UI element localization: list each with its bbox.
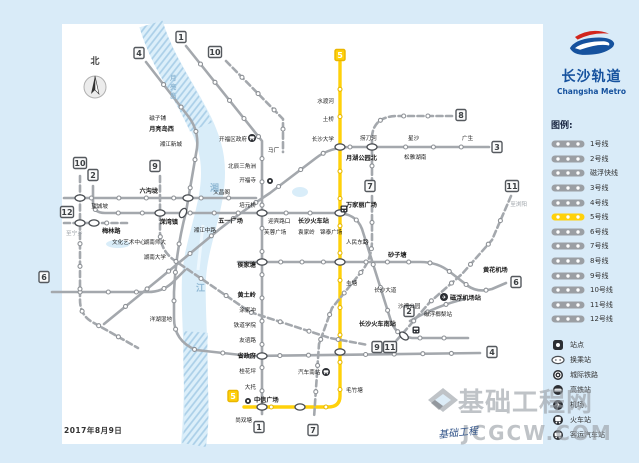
- station-label: 磁子铺: [149, 114, 166, 122]
- legend-icon-label: 机场: [570, 400, 584, 410]
- station-dot: [78, 242, 82, 246]
- legend-line-item: 10号线: [551, 283, 639, 298]
- station-dot: [177, 242, 181, 246]
- station-dot: [370, 164, 374, 168]
- station-dot: [402, 114, 406, 118]
- line-badge-11: 11: [384, 342, 397, 353]
- line-badge-5: 5: [228, 391, 238, 402]
- train-body: [413, 327, 420, 334]
- station-dot: [240, 75, 244, 79]
- station-dot: [277, 185, 281, 189]
- badge-number: 7: [310, 426, 316, 435]
- transfer-station: [257, 353, 267, 359]
- line-swatch: [551, 213, 585, 221]
- station-label: 圭塘: [346, 279, 358, 287]
- station-label: 砂子塘: [387, 251, 407, 259]
- station-label: 月湖公园北: [345, 154, 378, 162]
- legend-line-label: 7号线: [590, 241, 608, 251]
- legend-line-item: 5号线: [551, 210, 639, 225]
- station-dot: [338, 224, 342, 228]
- station-dot: [316, 363, 320, 367]
- station-label: 广生: [462, 134, 474, 142]
- legend-line-item: 1号线: [551, 137, 639, 152]
- station-label: 磁浮榔梨站: [424, 310, 452, 318]
- transfer-station: [257, 404, 267, 410]
- station-dot: [338, 306, 342, 310]
- legend-line-label: 4号线: [590, 198, 608, 208]
- station-dot: [321, 260, 325, 264]
- badge-number: 5: [337, 51, 343, 60]
- station-label: 至宁乡: [66, 229, 83, 237]
- legend-line-item: 6号线: [551, 225, 639, 240]
- station-dot: [106, 290, 110, 294]
- station-dot: [221, 351, 225, 355]
- station-dot: [300, 260, 304, 264]
- line-badge-10: 10: [74, 158, 87, 169]
- badge-number: 2: [90, 171, 96, 180]
- legend-icon-list: 站点换乘站城际铁路高铁站✈机场火车站客运汽车站: [551, 338, 639, 443]
- bus-legend-icon: [551, 428, 565, 442]
- line-swatch: [551, 257, 585, 265]
- station-label: 湖南大学: [144, 253, 167, 261]
- line-badge-4: 4: [134, 48, 144, 59]
- station-label: 黄花机场: [483, 266, 508, 274]
- station-dot: [338, 333, 342, 337]
- station-dot: [144, 196, 148, 200]
- station-dot: [426, 114, 430, 118]
- legend-line-item: 7号线: [551, 239, 639, 254]
- transfer-station: [335, 349, 345, 355]
- station-dot: [459, 145, 463, 149]
- station-label: 长沙火车南站: [359, 320, 397, 328]
- station-label: 中信广场: [254, 396, 279, 404]
- plane-glyph: ✈: [442, 294, 447, 301]
- line-swatch: [551, 286, 585, 294]
- station-dot: [278, 354, 282, 358]
- station-label: 梅林路: [102, 227, 121, 235]
- station-dot: [308, 211, 312, 215]
- station-dot: [442, 336, 446, 340]
- station-dot: [338, 360, 342, 364]
- line-swatch: [551, 184, 585, 192]
- station-label: 捞刀河: [360, 134, 377, 142]
- station-dot: [162, 83, 166, 87]
- badge-number: 4: [489, 348, 495, 357]
- station-dot: [80, 309, 84, 313]
- station-dot: [188, 252, 192, 256]
- station-dot: [162, 287, 166, 291]
- station-dot: [364, 260, 368, 264]
- station-dot: [174, 259, 178, 263]
- line-badge-7: 7: [365, 181, 375, 192]
- legend-icon-label: 城际铁路: [570, 370, 598, 380]
- station-label: 北辰三角洲: [228, 162, 256, 170]
- train-light: [345, 210, 346, 211]
- legend-line-item: 9号线: [551, 268, 639, 283]
- station-dot: [260, 319, 264, 323]
- train-light: [414, 331, 415, 332]
- line-swatch: [551, 272, 585, 280]
- station-dot: [404, 145, 408, 149]
- station-label: 涂家冲: [239, 306, 256, 314]
- transfer-station: [335, 259, 345, 265]
- station-dot: [272, 108, 276, 112]
- station-label: 望城坡: [91, 202, 108, 210]
- line-swatch: [551, 242, 585, 250]
- transfer-legend-icon: [551, 353, 565, 367]
- station-dot: [78, 287, 82, 291]
- station-dot: [338, 251, 342, 255]
- station-dot: [172, 196, 176, 200]
- legend-icon-item: 城际铁路: [551, 368, 639, 383]
- line-badge-1: 1: [254, 422, 264, 433]
- hsr-legend-icon: [551, 383, 565, 397]
- station-dot: [179, 105, 183, 109]
- station-label: 月亮岛西: [148, 125, 174, 133]
- station-legend-icon: [551, 338, 565, 352]
- line-swatch: [551, 301, 585, 309]
- legend-icon-item: ✈机场: [551, 398, 639, 413]
- station-dot: [284, 211, 288, 215]
- station-dot: [260, 250, 264, 254]
- changsha-metro-linemap-page: 北✈11223445566778991010111112磁子铺月亮岛西湘江新城开…: [0, 0, 639, 463]
- station-dot: [338, 87, 342, 91]
- station-dot: [167, 269, 171, 273]
- legend-icon-item: 站点: [551, 338, 639, 353]
- bus-body: [324, 370, 329, 373]
- station-dot: [359, 271, 363, 275]
- station-dot: [338, 169, 342, 173]
- station-label: 开福区政府: [219, 135, 247, 143]
- badge-number: 1: [256, 423, 262, 432]
- station-dot: [78, 264, 82, 268]
- station-dot: [260, 273, 264, 277]
- station-dot: [228, 98, 232, 102]
- station-dot: [371, 263, 375, 267]
- legend-line-item: 4号线: [551, 195, 639, 210]
- station-label: 黄土岭: [237, 291, 256, 299]
- badge-number: 9: [152, 162, 158, 171]
- station-dot: [260, 342, 264, 346]
- legend-line-item: 12号线: [551, 312, 639, 327]
- legend-line-label: 2号线: [590, 154, 608, 164]
- station-label: 松雅湖南: [404, 153, 427, 161]
- station-label: 汽车南站: [298, 368, 321, 376]
- station-dot: [140, 211, 144, 215]
- station-label: 湘江新城: [160, 140, 183, 148]
- train-light: [417, 331, 418, 332]
- station-dot: [444, 302, 448, 306]
- station-dot: [173, 270, 177, 274]
- station-label: 省政府: [236, 352, 256, 360]
- line-badge-10: 10: [209, 47, 222, 58]
- legend: 图例: 1号线 2号线 磁浮快线 3号线: [551, 118, 639, 443]
- station-dot: [224, 294, 228, 298]
- intercity-icon: [245, 398, 252, 405]
- station-dot: [227, 196, 231, 200]
- station-label: 江: [196, 282, 205, 294]
- station-label: 开福寺: [239, 176, 256, 184]
- station-dot: [336, 338, 340, 342]
- legend-icon-label: 换乘站: [570, 355, 591, 365]
- station-label: 长沙大道: [374, 286, 397, 294]
- line-badge-9: 9: [372, 342, 382, 353]
- badge-number: 11: [384, 343, 396, 352]
- line-badge-6: 6: [511, 277, 521, 288]
- station-dot: [278, 320, 282, 324]
- line-swatch: [551, 155, 585, 163]
- airport-legend-icon: ✈: [551, 398, 565, 412]
- brand-name-en: Changsha Metro: [544, 87, 639, 96]
- legend-line-label: 5号线: [590, 212, 608, 222]
- station-dot: [369, 247, 373, 251]
- bus-wheel: [253, 139, 254, 140]
- station-dot: [193, 347, 197, 351]
- station-dot: [449, 351, 453, 355]
- station-label: 湘江中路: [194, 226, 217, 234]
- station-label: 月亮岛: [169, 74, 177, 100]
- station-label: 铁道学院: [234, 321, 257, 329]
- station-dot: [450, 281, 454, 285]
- station-dot: [89, 196, 93, 200]
- station-dot: [328, 313, 332, 317]
- station-label: 人民东路: [346, 238, 369, 246]
- station-dot: [236, 211, 240, 215]
- station-dot: [299, 168, 303, 172]
- station-dot: [364, 353, 368, 357]
- line-badge-3: 3: [492, 142, 502, 153]
- station-label: 文化艺术中心: [112, 238, 146, 246]
- line-badge-4: 4: [487, 347, 497, 358]
- train-light: [342, 210, 343, 211]
- badge-number: 4: [136, 49, 142, 58]
- line-badge-2: 2: [88, 170, 98, 181]
- legend-icon-label: 高铁站: [570, 385, 591, 395]
- legend-icon-item: 火车站: [551, 413, 639, 428]
- station-dot: [193, 158, 197, 162]
- legend-icon-label: 火车站: [570, 415, 591, 425]
- badge-number: 10: [209, 48, 221, 57]
- line-badge-5: 5: [335, 50, 345, 61]
- station-dot: [97, 324, 101, 328]
- station-label: 毛竹塘: [346, 386, 363, 394]
- station-dot: [484, 288, 488, 292]
- legend-line-label: 8号线: [590, 256, 608, 266]
- station-dot: [199, 62, 203, 66]
- station-dot: [212, 211, 216, 215]
- bus-wheel: [327, 373, 328, 374]
- transfer-station: [155, 210, 165, 216]
- line-swatch: [551, 140, 585, 148]
- transfer-station: [75, 220, 85, 226]
- station-dot: [486, 242, 490, 246]
- station-dot: [174, 327, 178, 331]
- station-dot: [124, 304, 128, 308]
- station-dot: [314, 390, 318, 394]
- brand-logo: 长沙轨道 Changsha Metro: [544, 26, 639, 96]
- station-label: 桂花坪: [239, 367, 256, 375]
- station-dot: [338, 388, 342, 392]
- badge-number: 12: [61, 208, 72, 217]
- station-label: 水渡河: [317, 97, 334, 105]
- station-label: 六沟垅: [139, 187, 158, 195]
- station-label: 袁家岭: [298, 228, 315, 236]
- legend-line-item: 8号线: [551, 254, 639, 269]
- badge-number: 5: [230, 392, 236, 401]
- station-dot: [407, 260, 411, 264]
- legend-line-label: 磁浮快线: [590, 168, 618, 178]
- station-label: 湖南师大: [144, 238, 167, 246]
- station-dot: [199, 277, 203, 281]
- station-dot: [431, 145, 435, 149]
- station-label: 土桥: [323, 115, 335, 123]
- station-dot: [338, 278, 342, 282]
- transfer-station: [367, 144, 377, 150]
- bus-wheel: [324, 373, 325, 374]
- legend-line-item: 3号线: [551, 181, 639, 196]
- legend-line-list: 1号线 2号线 磁浮快线 3号线 4号线: [551, 137, 639, 327]
- badge-number: 1: [178, 33, 184, 42]
- intercity-icon: [267, 178, 274, 185]
- station-dot: [194, 129, 198, 133]
- transfer-station: [257, 210, 267, 216]
- svg-text:✈: ✈: [555, 402, 561, 410]
- badge-number: 3: [494, 143, 500, 152]
- lake: [292, 187, 308, 197]
- station-dot: [447, 269, 451, 273]
- line-badge-7: 7: [308, 425, 318, 436]
- station-label: 长沙大学: [312, 135, 335, 143]
- station-dot: [370, 220, 374, 224]
- line-badge-1: 1: [176, 32, 186, 43]
- transfer-station: [183, 195, 193, 201]
- line-swatch: [551, 169, 585, 177]
- intercity-dot: [269, 180, 271, 182]
- station-dot: [321, 151, 325, 155]
- station-dot: [429, 299, 433, 303]
- station-dot: [354, 218, 358, 222]
- intercity-dot: [247, 400, 249, 402]
- station-dot: [378, 118, 382, 122]
- brand-name-cn: 长沙轨道: [544, 66, 639, 86]
- transfer-station: [335, 144, 345, 150]
- station-dot: [338, 115, 342, 119]
- station-label: 锦泰广场: [320, 228, 343, 236]
- station-dot: [348, 145, 352, 149]
- side-panel: 长沙轨道 Changsha Metro 图例: 1号线 2号线 磁浮快线: [544, 0, 639, 463]
- station-dot: [116, 211, 120, 215]
- line-swatch: [551, 228, 585, 236]
- bus-icon: [322, 368, 330, 376]
- transfer-station: [89, 220, 99, 226]
- station-dot: [158, 235, 162, 239]
- station-label: 长沙火车站: [298, 217, 330, 225]
- station-label: 友谊路: [239, 336, 256, 344]
- station-label: 侯家塘: [237, 261, 256, 269]
- station-dot: [269, 405, 273, 409]
- legend-line-item: 11号线: [551, 298, 639, 313]
- station-dot: [324, 405, 328, 409]
- station-dot: [172, 299, 176, 303]
- station-dot: [498, 219, 502, 223]
- station-dot: [117, 196, 121, 200]
- station-label: 沙湾公园: [398, 302, 421, 310]
- station-label: 湘: [210, 182, 219, 194]
- line-swatch: [551, 199, 585, 207]
- station-label: 培元桥: [239, 201, 256, 209]
- station-dot: [319, 337, 323, 341]
- station-dot: [418, 336, 422, 340]
- badge-number: 10: [74, 159, 86, 168]
- station-dot: [342, 291, 346, 295]
- station-dot: [213, 80, 217, 84]
- station-label: 尚双塘: [235, 416, 252, 424]
- station-dot: [105, 221, 109, 225]
- station-label: 磁浮机场站: [450, 294, 482, 302]
- badge-number: 8: [458, 111, 464, 120]
- train-window: [414, 328, 418, 330]
- railway-legend-icon: [551, 413, 565, 427]
- station-dot: [260, 180, 264, 184]
- station-dot: [188, 186, 192, 190]
- station-dot: [260, 296, 264, 300]
- station-dot: [256, 92, 260, 96]
- station-dot: [307, 329, 311, 333]
- station-label: 万家丽广场: [345, 201, 377, 209]
- station-label: 洋湖湿地: [150, 315, 173, 323]
- legend-icon-item: 高铁站: [551, 383, 639, 398]
- legend-icon-label: 站点: [570, 340, 584, 350]
- legend-icon-label: 客运汽车站: [570, 430, 605, 440]
- station-dot: [421, 352, 425, 356]
- station-label: 大托: [245, 383, 257, 391]
- transfer-station: [295, 404, 305, 410]
- station-dot: [469, 262, 473, 266]
- legend-line-label: 10号线: [590, 285, 613, 295]
- station-dot: [464, 283, 468, 287]
- train-icon: [413, 327, 420, 334]
- legend-line-label: 3号线: [590, 183, 608, 193]
- transfer-station: [257, 259, 267, 265]
- station-dot: [257, 135, 261, 139]
- legend-line-item: 磁浮快线: [551, 166, 639, 181]
- station-dot: [260, 389, 264, 393]
- station-dot: [260, 203, 264, 207]
- station-dot: [116, 335, 120, 339]
- station-label: 至浏阳: [510, 200, 527, 208]
- station-dot: [396, 330, 400, 334]
- station-label: 马厂: [268, 146, 280, 154]
- bus-icon: [248, 134, 256, 142]
- line-badge-12: 12: [61, 207, 74, 218]
- station-dot: [338, 197, 342, 201]
- line-badge-8: 8: [456, 110, 466, 121]
- station-dot: [412, 319, 416, 323]
- station-dot: [199, 196, 203, 200]
- station-dot: [260, 157, 264, 161]
- map-date: 2017年8月9日: [64, 425, 122, 436]
- station-dot: [385, 260, 389, 264]
- station-label: 五一广场: [218, 217, 243, 225]
- legend-header: 图例:: [551, 118, 639, 131]
- station-dot: [188, 211, 192, 215]
- station-dot: [145, 287, 149, 291]
- station-dot: [386, 308, 390, 312]
- legend-line-item: 2号线: [551, 152, 639, 167]
- station-dot: [134, 290, 138, 294]
- badge-number: 7: [367, 182, 373, 191]
- station-dot: [428, 261, 432, 265]
